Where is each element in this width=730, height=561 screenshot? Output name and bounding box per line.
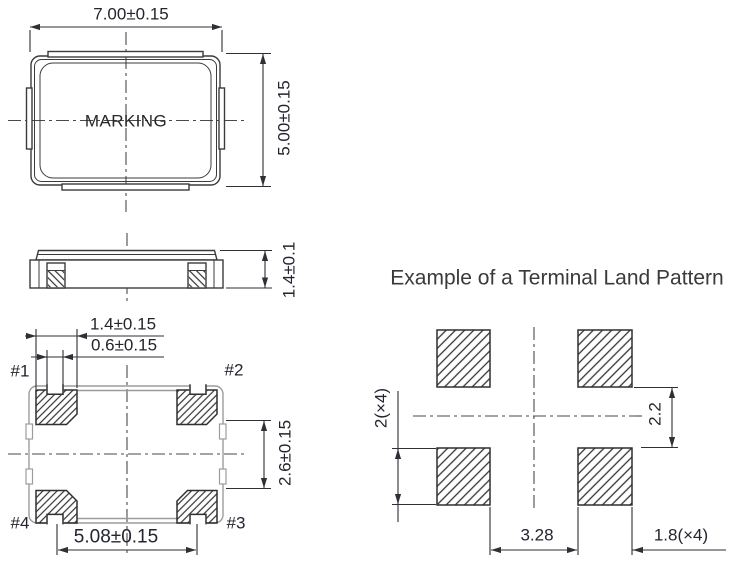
bottom-view-notch-left-lower: [26, 469, 33, 484]
pad-3-notch-fill: [189, 514, 206, 524]
top-view-crown-right: [219, 88, 225, 149]
dim-text-land-gap-v: 2.2: [647, 402, 664, 426]
bottom-view-notch-right-upper: [220, 424, 227, 439]
top-view-crown-left: [27, 88, 33, 149]
dim-text-land-gap-h: 3.28: [520, 527, 553, 544]
land-pad-bottom-right: [578, 448, 632, 505]
land-pattern-title: Example of a Terminal Land Pattern: [390, 268, 723, 289]
pad-label-1: #1: [11, 363, 30, 380]
dim-text-land-pad-height: 2(×4): [373, 388, 390, 428]
pad-4-notch-fill: [46, 514, 63, 524]
pad-label-4: #4: [11, 515, 30, 532]
dim-text-pad-gap: 2.6±0.15: [277, 420, 294, 486]
top-view-crown-top: [48, 52, 203, 58]
pad-1-notch-fill: [46, 384, 63, 394]
dim-text-top-height: 5.00±0.15: [276, 80, 293, 156]
land-pad-bottom-left: [437, 448, 490, 505]
dim-text-top-width: 7.00±0.15: [93, 6, 169, 23]
land-pattern: [392, 327, 726, 555]
side-view-terminal-right-hatch: [189, 271, 205, 287]
pad-2-notch-fill: [189, 384, 206, 394]
dim-text-pad-span: 5.08±0.15: [74, 528, 158, 547]
marking-text: MARKING: [85, 113, 167, 130]
bottom-view-notch-right-lower: [220, 469, 227, 484]
dim-text-notch-width: 0.6±0.15: [91, 337, 157, 354]
side-view-lid: [36, 251, 217, 261]
dim-text-side-height: 1.4±0.1: [281, 242, 298, 299]
pad-2: [177, 390, 217, 425]
pad-label-3: #3: [227, 515, 246, 532]
side-view: [30, 233, 272, 302]
pad-1: [36, 390, 77, 425]
land-pad-top-left: [437, 330, 490, 387]
pad-label-2: #2: [225, 362, 244, 379]
land-pad-top-right: [578, 330, 632, 387]
dim-text-land-pad-width: 1.8(×4): [654, 527, 708, 544]
bottom-view-notch-left-upper: [26, 424, 33, 439]
side-view-terminal-left-hatch: [48, 271, 64, 287]
top-view-crown-bottom: [62, 184, 189, 190]
datasheet-drawing: 7.00±0.15 5.00±0.15 MARKING 1.4±0.1 1.4±…: [0, 0, 730, 561]
dim-text-pad-width: 1.4±0.15: [90, 316, 156, 333]
